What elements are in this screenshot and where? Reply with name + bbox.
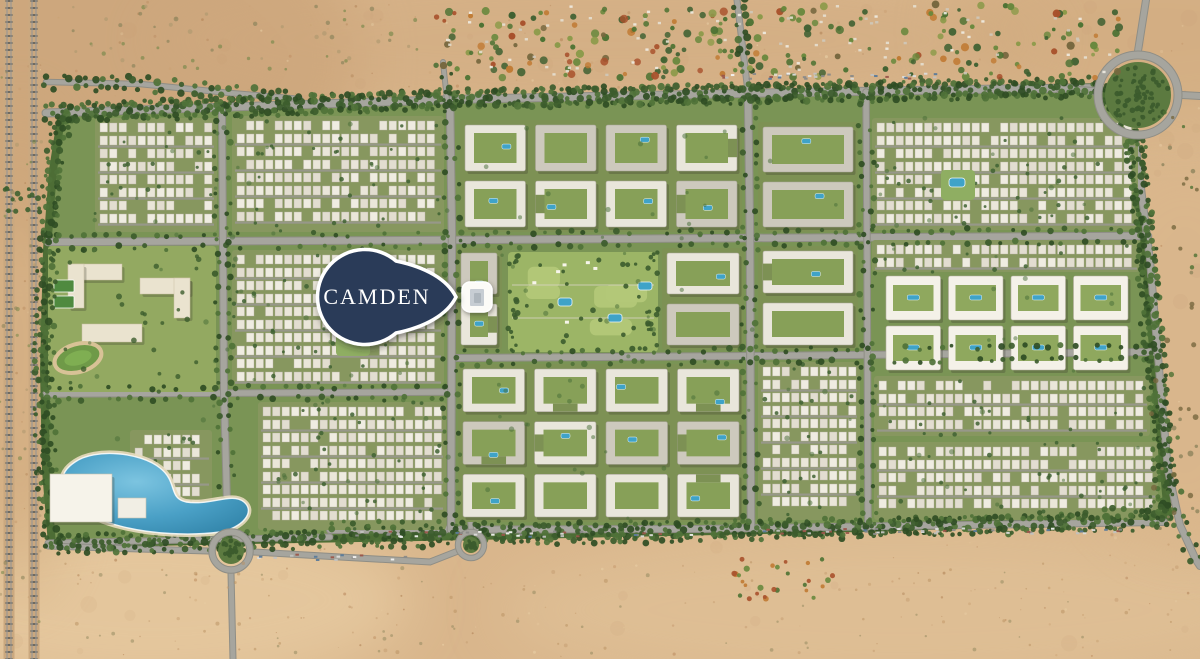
pin-label: CAMDEN	[323, 284, 430, 309]
building-glyph-inner	[474, 293, 481, 303]
aerial-master-plan-map: CAMDEN	[0, 0, 1200, 659]
map-canvas: CAMDEN	[0, 0, 1200, 659]
camden-building-highlight[interactable]	[462, 282, 492, 312]
